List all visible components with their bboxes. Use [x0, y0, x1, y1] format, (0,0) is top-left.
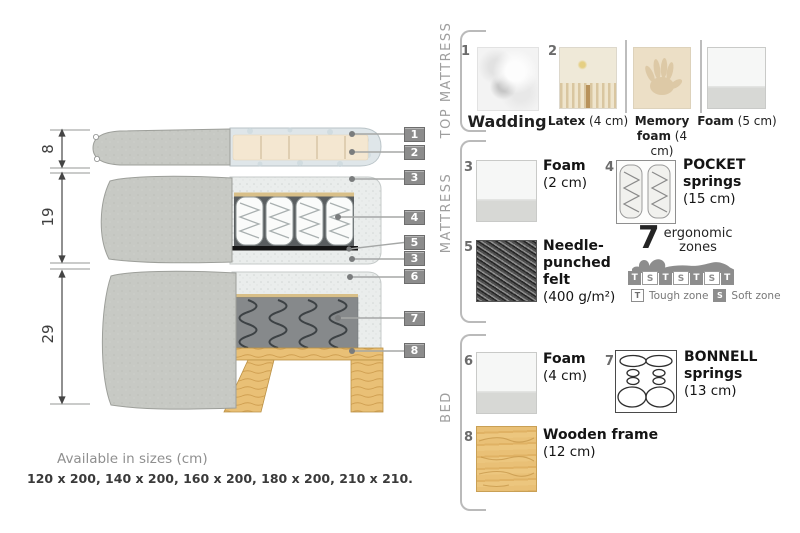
dimension-label-8: 8 [39, 136, 57, 162]
item-number-6: 6 [464, 354, 473, 369]
zone-strip: T S T S T S T [628, 271, 734, 285]
available-sizes-title: Available in sizes (cm) [57, 451, 208, 467]
memory-foam-photo [633, 47, 691, 109]
bonnell-springs-icon [615, 350, 677, 413]
foam-2cm-photo [476, 160, 537, 222]
dimension-arrows [59, 130, 64, 403]
callout-badge-4: 4 [404, 210, 425, 225]
latex-photo [559, 47, 617, 109]
dimension-ticks [50, 130, 90, 404]
latex-label: Latex (4 cm) [545, 114, 631, 129]
mattress-layer [101, 176, 381, 264]
callout-badge-2: 2 [404, 145, 425, 160]
wadding-photo [477, 47, 539, 111]
foam-5cm-photo [707, 47, 766, 109]
callout-badge-8: 8 [404, 343, 425, 358]
wood-frame-label: Wooden frame (12 cm) [543, 427, 693, 461]
available-sizes-list: 120 x 200, 140 x 200, 160 x 200, 180 x 2… [27, 471, 413, 486]
hand-imprint-icon [634, 48, 690, 108]
foam-2cm-label: Foam (2 cm) [543, 158, 603, 192]
mattress-construction-infographic: 8 19 29 1 2 3 4 5 3 6 7 8 Available in s… [0, 0, 800, 533]
callout-badge-6: 6 [404, 269, 425, 284]
pocket-springs-icon [616, 160, 676, 224]
memory-foam-label: Memory foam (4 cm) [627, 114, 697, 159]
callout-badge-7: 7 [404, 311, 425, 326]
felt-label: Needle-punched felt (400 g/m²) [543, 238, 631, 306]
wadding-label: Wadding [463, 112, 551, 132]
section-label-bed: BED [439, 347, 455, 467]
person-silhouette-icon [630, 250, 734, 273]
foam-4cm-photo [476, 352, 537, 414]
pocket-springs-label: POCKET springs (15 cm) [683, 157, 769, 208]
tough-zone-key: T [631, 289, 644, 302]
divider [700, 40, 702, 113]
foam-4cm-label: Foam (4 cm) [543, 351, 603, 385]
dimension-label-19: 19 [39, 204, 57, 230]
section-label-top-mattress: TOP MATTRESS [439, 20, 455, 140]
item-number-5: 5 [464, 240, 473, 255]
foam-5cm-label: Foam (5 cm) [697, 114, 777, 129]
callout-badge-3b: 3 [404, 251, 425, 266]
item-number-3: 3 [464, 160, 473, 175]
top-mattress-layer [93, 128, 381, 168]
bed-layer [102, 271, 383, 412]
bonnell-springs-label: BONNELL springs (13 cm) [684, 349, 774, 400]
section-label-mattress: MATTRESS [439, 153, 455, 273]
soft-zone-key: S [713, 289, 726, 302]
zone-key-legend: T Tough zone S Soft zone [631, 289, 781, 302]
item-number-4: 4 [605, 160, 614, 175]
wood-frame-photo [476, 426, 537, 492]
item-number-7: 7 [605, 354, 614, 369]
felt-photo [476, 240, 537, 302]
item-number-2: 2 [548, 44, 557, 59]
callout-badge-3a: 3 [404, 170, 425, 185]
callout-badge-1: 1 [404, 127, 425, 142]
dimension-label-29: 29 [39, 321, 57, 347]
item-number-1: 1 [461, 44, 470, 59]
callout-badge-5: 5 [404, 235, 425, 250]
item-number-8: 8 [464, 430, 473, 445]
divider [625, 40, 627, 113]
